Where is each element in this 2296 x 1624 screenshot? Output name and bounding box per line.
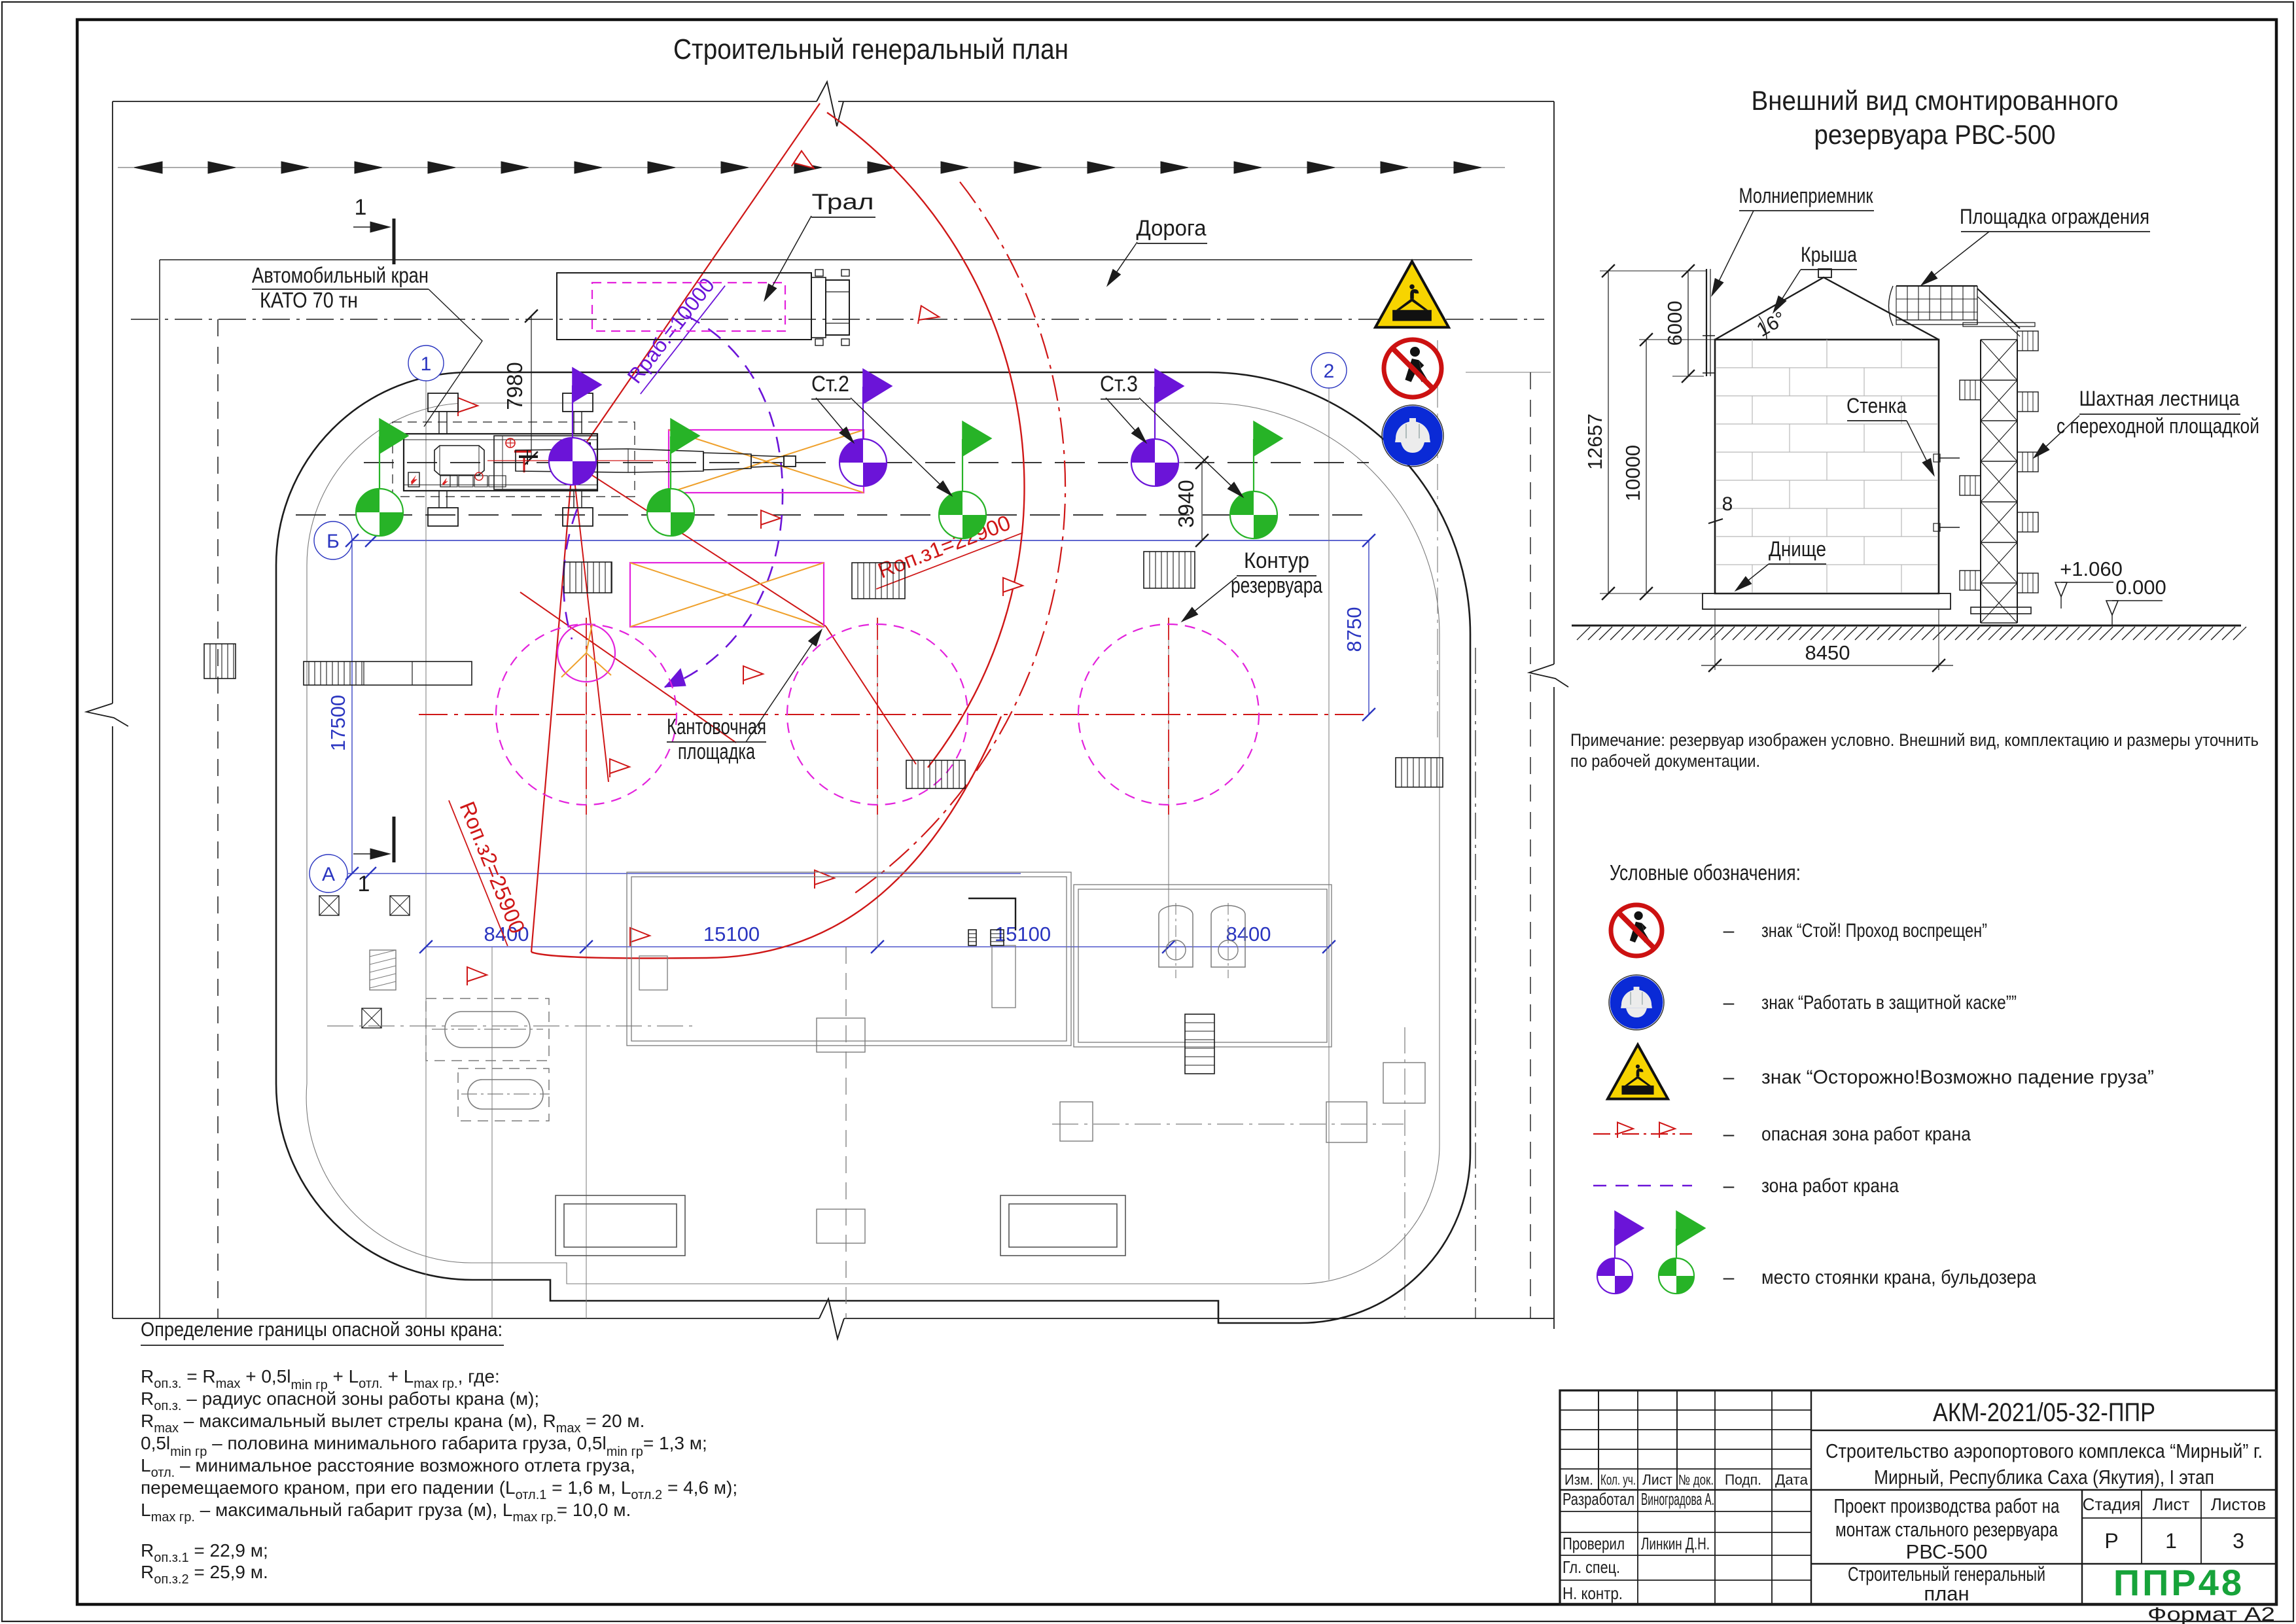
svg-text:Дорога: Дорога (1137, 216, 1207, 241)
svg-text:знак “Стой! Проход воспрещен”: знак “Стой! Проход воспрещен” (1761, 920, 1987, 942)
svg-text:знак “Осторожно!Возможно паден: знак “Осторожно!Возможно падение груза” (1761, 1067, 2154, 1088)
svg-text:КАТО 70 тн: КАТО 70 тн (260, 288, 358, 312)
svg-text:Молниеприемник: Молниеприемник (1739, 184, 1874, 207)
svg-text:АКМ-2021/05-32-ППР: АКМ-2021/05-32-ППР (1933, 1398, 2155, 1427)
svg-text:Днище: Днище (1769, 537, 1826, 561)
svg-text:Подп.: Подп. (1725, 1472, 1761, 1488)
svg-text:Примечание: резервуар изображе: Примечание: резервуар изображен условно.… (1570, 730, 2259, 750)
svg-text:3: 3 (2233, 1529, 2244, 1553)
svg-text:Н. контр.: Н. контр. (1563, 1583, 1623, 1603)
svg-text:2: 2 (1324, 361, 1335, 382)
svg-text:3940: 3940 (1174, 480, 1198, 527)
svg-text:0.000: 0.000 (2115, 576, 2166, 599)
svg-text:Изм.: Изм. (1564, 1472, 1593, 1488)
svg-text:резервуара РВС-500: резервуара РВС-500 (1814, 119, 2056, 150)
svg-text:Виноградова А.: Виноградова А. (1641, 1489, 1714, 1509)
svg-text:Крыша: Крыша (1801, 243, 1857, 266)
svg-text:Трал: Трал (812, 190, 874, 215)
svg-text:Б: Б (327, 531, 340, 552)
svg-text:Стенка: Стенка (1846, 394, 1907, 417)
svg-text:Линкин Д.Н.: Линкин Д.Н. (1641, 1534, 1710, 1553)
svg-text:Дата: Дата (1775, 1472, 1809, 1488)
svg-text:Стадия: Стадия (2083, 1494, 2141, 1514)
svg-text:8: 8 (1722, 493, 1733, 515)
svg-text:Строительный генеральный план: Строительный генеральный план (673, 33, 1069, 65)
svg-text:–: – (1723, 1267, 1735, 1288)
svg-text:место стоянки крана, бульдозер: место стоянки крана, бульдозера (1761, 1267, 2036, 1288)
svg-text:–: – (1723, 1067, 1735, 1088)
svg-text:Кантовочная: Кантовочная (667, 715, 766, 739)
svg-text:Формат А2: Формат А2 (2147, 1604, 2275, 1624)
svg-text:Гл. спец.: Гл. спец. (1563, 1557, 1620, 1577)
svg-text:зона работ крана: зона работ крана (1761, 1175, 1899, 1197)
svg-text:15100: 15100 (703, 923, 760, 945)
svg-text:Ст.3: Ст.3 (1100, 372, 1138, 397)
svg-text:1: 1 (358, 872, 370, 896)
svg-text:Автомобильный кран: Автомобильный кран (252, 263, 429, 287)
svg-text:Кол. уч.: Кол. уч. (1600, 1472, 1636, 1488)
svg-text:–: – (1723, 992, 1735, 1014)
svg-text:знак “Работать в защитной каск: знак “Работать в защитной каске”” (1761, 992, 2017, 1014)
svg-text:с переходной площадкой: с переходной площадкой (2057, 414, 2259, 438)
svg-text:–: – (1723, 1123, 1735, 1145)
svg-text:резервуара: резервуара (1231, 573, 1322, 598)
svg-text:площадка: площадка (678, 739, 755, 764)
svg-text:Строительство аэропортового ко: Строительство аэропортового комплекса “М… (1826, 1439, 2263, 1462)
svg-text:ППР48: ППР48 (2113, 1562, 2244, 1603)
svg-text:РВС-500: РВС-500 (1906, 1540, 1988, 1563)
svg-text:Условные обозначения:: Условные обозначения: (1610, 860, 1801, 885)
svg-text:12657: 12657 (1583, 414, 1606, 470)
svg-text:№ док.: № док. (1678, 1472, 1714, 1488)
svg-text:–: – (1723, 920, 1735, 942)
svg-text:17500: 17500 (327, 695, 349, 751)
svg-text:монтаж стального резервуара: монтаж стального резервуара (1835, 1518, 2058, 1541)
svg-text:8750: 8750 (1343, 607, 1366, 652)
svg-text:опасная зона работ крана: опасная зона работ крана (1761, 1123, 1971, 1145)
svg-text:Р: Р (2104, 1529, 2118, 1553)
svg-text:Площадка ограждения: Площадка ограждения (1960, 205, 2149, 228)
svg-text:–: – (1723, 1175, 1735, 1197)
svg-text:Разработал: Разработал (1563, 1489, 1634, 1509)
svg-text:Проверил: Проверил (1563, 1534, 1625, 1553)
svg-text:Определение границы опасной зо: Определение границы опасной зоны крана: (141, 1318, 503, 1341)
svg-text:Внешний вид смонтированного: Внешний вид смонтированного (1752, 85, 2119, 116)
svg-text:8400: 8400 (1226, 923, 1271, 945)
svg-text:по рабочей документации.: по рабочей документации. (1570, 751, 1760, 771)
svg-text:Проект производства работ на: Проект производства работ на (1834, 1494, 2060, 1517)
svg-text:8450: 8450 (1805, 641, 1850, 664)
svg-text:Контур: Контур (1244, 548, 1309, 573)
svg-text:Ст.2: Ст.2 (811, 372, 849, 397)
svg-text:Листов: Листов (2211, 1494, 2266, 1514)
svg-text:1: 1 (2165, 1529, 2177, 1553)
svg-text:7980: 7980 (503, 362, 527, 410)
svg-text:Мирный, Республика Саха (Якути: Мирный, Республика Саха (Якутия), I этап (1874, 1466, 2214, 1489)
svg-text:Лист: Лист (2153, 1494, 2190, 1514)
svg-text:+1.060: +1.060 (2060, 557, 2123, 580)
svg-text:Лист: Лист (1642, 1472, 1672, 1488)
svg-text:Шахтная лестница: Шахтная лестница (2079, 387, 2240, 410)
svg-text:план: план (1924, 1582, 1969, 1605)
svg-text:А: А (322, 864, 335, 885)
svg-text:1: 1 (421, 353, 432, 375)
svg-text:1: 1 (355, 195, 367, 220)
svg-text:6000: 6000 (1663, 301, 1686, 346)
svg-text:10000: 10000 (1621, 445, 1644, 501)
